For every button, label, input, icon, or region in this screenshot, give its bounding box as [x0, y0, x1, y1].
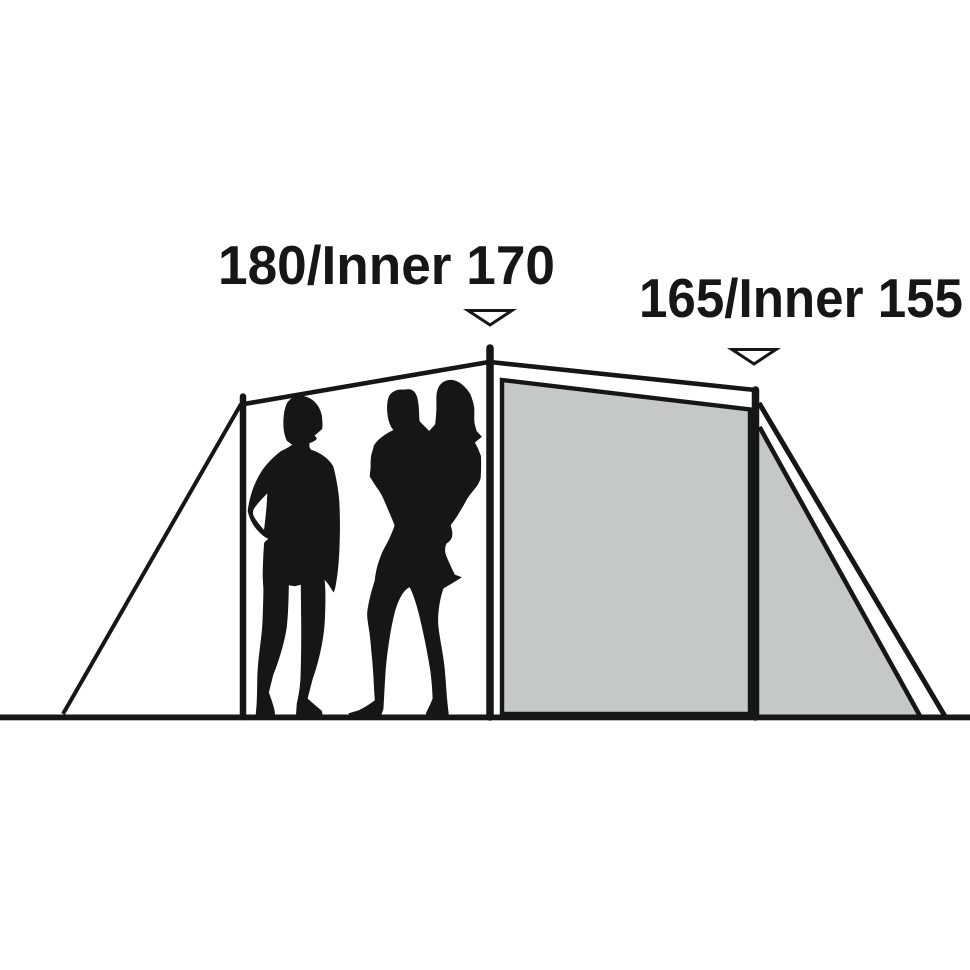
- svg-text:165/Inner 155: 165/Inner 155: [639, 267, 963, 329]
- svg-text:180/Inner 170: 180/Inner 170: [218, 234, 555, 296]
